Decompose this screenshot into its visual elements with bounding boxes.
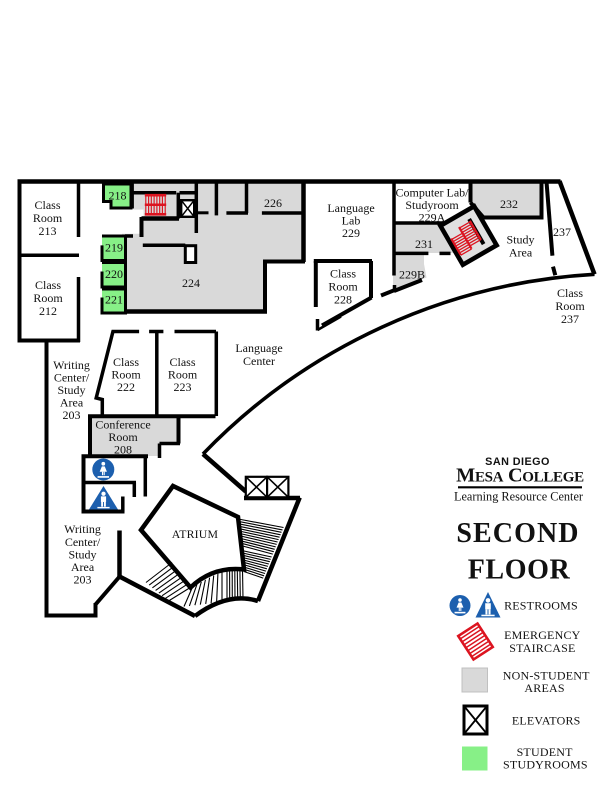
- svg-text:Learning Resource Center: Learning Resource Center: [454, 490, 583, 504]
- svg-text:Room: Room: [555, 299, 585, 313]
- svg-text:Class: Class: [330, 267, 356, 281]
- svg-text:237: 237: [553, 225, 571, 239]
- svg-text:Study: Study: [506, 233, 534, 247]
- svg-text:229A: 229A: [419, 211, 446, 225]
- svg-text:Room: Room: [33, 211, 63, 225]
- svg-text:222: 222: [117, 380, 135, 394]
- svg-text:223: 223: [174, 380, 192, 394]
- svg-text:232: 232: [500, 197, 518, 211]
- svg-text:237: 237: [561, 312, 579, 326]
- svg-text:212: 212: [39, 304, 57, 318]
- svg-text:FLOOR: FLOOR: [468, 555, 571, 586]
- svg-text:Room: Room: [328, 280, 358, 294]
- svg-text:Room: Room: [33, 291, 63, 305]
- svg-text:221: 221: [105, 293, 123, 307]
- svg-text:203: 203: [63, 408, 81, 422]
- svg-text:231: 231: [415, 237, 433, 251]
- svg-text:ATRIUM: ATRIUM: [172, 527, 219, 541]
- svg-text:220: 220: [105, 267, 123, 281]
- svg-text:Center: Center: [243, 354, 275, 368]
- svg-text:208: 208: [114, 443, 132, 457]
- svg-text:Writing: Writing: [64, 522, 101, 536]
- svg-text:Area: Area: [509, 246, 533, 260]
- svg-text:228: 228: [334, 293, 352, 307]
- svg-text:Class: Class: [557, 286, 583, 300]
- svg-text:Class: Class: [34, 198, 60, 212]
- svg-text:ELEVATORS: ELEVATORS: [512, 714, 581, 728]
- svg-text:226: 226: [264, 196, 282, 210]
- svg-text:229B: 229B: [399, 268, 425, 282]
- svg-text:224: 224: [182, 276, 200, 290]
- svg-text:229: 229: [342, 226, 360, 240]
- svg-text:SECOND: SECOND: [456, 518, 579, 549]
- svg-text:218: 218: [109, 189, 127, 203]
- svg-text:RESTROOMS: RESTROOMS: [504, 599, 578, 613]
- svg-text:219: 219: [105, 241, 123, 255]
- svg-text:213: 213: [39, 224, 57, 238]
- svg-text:STAIRCASE: STAIRCASE: [509, 641, 575, 655]
- svg-text:Language: Language: [235, 341, 282, 355]
- svg-text:203: 203: [74, 573, 92, 587]
- svg-text:AREAS: AREAS: [524, 681, 564, 695]
- svg-text:Class: Class: [35, 278, 61, 292]
- svg-text:STUDYROOMS: STUDYROOMS: [503, 757, 588, 771]
